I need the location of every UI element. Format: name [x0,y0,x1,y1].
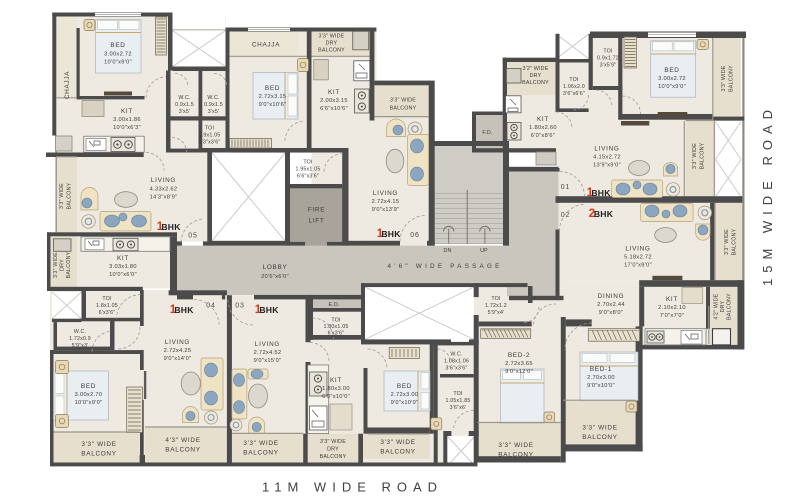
svg-text:3'3" WIDE: 3'3" WIDE [53,252,59,278]
svg-text:6'x3'6": 6'x3'6" [328,330,345,336]
svg-text:UP: UP [480,248,488,254]
svg-text:9'0"x8'0": 9'0"x8'0" [599,310,623,316]
svg-text:DRY: DRY [326,41,338,47]
svg-text:BALCONY: BALCONY [522,80,549,86]
svg-text:10'0"x6'0": 10'0"x6'0" [109,272,137,278]
svg-text:6'6"x3'6": 6'6"x3'6" [297,174,319,180]
svg-text:0.9x1.72: 0.9x1.72 [597,56,619,62]
svg-text:DINING: DINING [598,293,625,300]
svg-text:TOI: TOI [491,296,500,302]
svg-text:BHK: BHK [161,222,181,232]
svg-text:01: 01 [561,184,570,191]
svg-text:4.33x2.62: 4.33x2.62 [150,187,178,193]
svg-text:BHK: BHK [259,305,279,315]
svg-text:LIVING: LIVING [594,146,619,153]
svg-text:W.C.: W.C. [74,329,86,335]
svg-text:11M WIDE ROAD: 11M WIDE ROAD [262,480,443,495]
svg-text:7'0"x7'0": 7'0"x7'0" [660,313,684,319]
svg-text:DN: DN [443,248,451,254]
svg-text:KIT: KIT [666,296,678,303]
svg-text:BED: BED [397,383,412,390]
svg-text:6'3"x3'6": 6'3"x3'6" [198,140,220,146]
svg-text:3'3" WIDE: 3'3" WIDE [320,439,346,445]
svg-text:1.06x2.0: 1.06x2.0 [563,84,585,90]
svg-text:BHK: BHK [174,305,194,315]
svg-text:2.72x3.00: 2.72x3.00 [391,392,419,398]
svg-text:20'6"x6'0": 20'6"x6'0" [261,274,289,280]
svg-text:TOI: TOI [603,49,612,55]
svg-text:1.80x1.05: 1.80x1.05 [323,324,348,330]
svg-text:9'0"x10'0": 9'0"x10'0" [391,400,419,406]
svg-text:3.00x1.86: 3.00x1.86 [113,117,141,123]
svg-text:LIVING: LIVING [373,190,398,197]
svg-text:3.00x2.70: 3.00x2.70 [75,392,103,398]
svg-text:0.9x1.5: 0.9x1.5 [204,102,223,108]
svg-text:1.72x1.2: 1.72x1.2 [485,303,507,309]
svg-text:3'3" WIDE: 3'3" WIDE [81,441,116,448]
svg-text:3'3" WIDE: 3'3" WIDE [380,439,415,446]
svg-text:10'0"x6'3": 10'0"x6'3" [113,125,141,131]
svg-text:06: 06 [410,232,419,239]
svg-text:KIT: KIT [117,255,129,262]
svg-text:BHK: BHK [594,209,614,219]
svg-text:BALCONY: BALCONY [380,449,415,456]
svg-text:1.9x1.05: 1.9x1.05 [199,133,221,139]
svg-text:3'3" WIDE: 3'3" WIDE [721,65,727,91]
svg-text:W.C.: W.C. [178,95,190,101]
svg-text:BALCONY: BALCONY [732,228,738,255]
svg-text:4'6" WIDE PASSAGE: 4'6" WIDE PASSAGE [387,263,502,270]
svg-text:3'2" WIDE: 3'2" WIDE [523,66,549,72]
svg-text:TOI: TOI [205,126,214,132]
svg-text:4'3" WIDE: 4'3" WIDE [165,437,200,444]
svg-text:1.72x0.9: 1.72x0.9 [69,336,91,342]
svg-text:BHK: BHK [591,188,611,198]
svg-text:BALCONY: BALCONY [320,454,347,460]
svg-text:KIT: KIT [121,108,133,115]
svg-text:05: 05 [188,233,197,240]
svg-text:2.72x4.52: 2.72x4.52 [254,350,282,356]
svg-text:3'3" WIDE: 3'3" WIDE [692,143,698,169]
svg-text:3'6"x3'6": 3'6"x3'6" [445,366,467,372]
svg-text:3'3" WIDE: 3'3" WIDE [59,183,65,209]
svg-text:4.15x2.72: 4.15x2.72 [593,155,621,161]
svg-text:BED-1: BED-1 [590,366,612,373]
svg-text:BALCONY: BALCONY [498,452,533,459]
svg-text:3'x5'9": 3'x5'9" [600,63,617,69]
svg-text:2.10x2.10: 2.10x2.10 [658,305,686,311]
svg-text:2.70x2.44: 2.70x2.44 [597,302,625,308]
svg-text:BALCONY: BALCONY [165,447,200,454]
svg-text:BALCONY: BALCONY [582,434,617,441]
svg-text:3.00x2.72: 3.00x2.72 [658,76,686,82]
svg-text:14'3"x8'9": 14'3"x8'9" [150,195,178,201]
svg-text:10'0"x9'0": 10'0"x9'0" [104,60,132,66]
svg-text:BED: BED [265,85,280,92]
svg-text:6'0"x10'0": 6'0"x10'0" [322,394,350,400]
svg-text:BALCONY: BALCONY [390,106,417,112]
svg-text:F.D.: F.D. [482,130,492,136]
svg-text:BALCONY: BALCONY [243,450,278,457]
svg-text:TOI: TOI [569,77,578,83]
svg-text:1.08x1.06: 1.08x1.06 [444,359,469,365]
svg-text:KIT: KIT [328,89,340,96]
svg-text:1.05x1.85: 1.05x1.85 [445,398,470,404]
svg-text:CHAJJA: CHAJJA [64,71,71,99]
svg-text:BALCONY: BALCONY [727,293,733,320]
svg-text:1.95x1.05: 1.95x1.05 [295,167,320,173]
svg-text:3.00x2.72: 3.00x2.72 [104,52,132,58]
svg-text:LIVING: LIVING [625,246,650,253]
svg-text:2.72x4.25: 2.72x4.25 [164,348,192,354]
svg-text:DRY: DRY [530,73,542,79]
svg-text:BED: BED [81,383,96,390]
svg-text:9'0"x14'0": 9'0"x14'0" [164,356,192,362]
svg-text:DRY: DRY [327,447,339,453]
svg-text:BALCONY: BALCONY [700,142,706,169]
svg-text:5'9"x4': 5'9"x4' [488,310,505,316]
svg-text:BED: BED [110,42,125,49]
svg-text:BED: BED [664,67,679,74]
svg-text:02: 02 [561,212,570,219]
svg-text:1.80x2.60: 1.80x2.60 [529,125,557,131]
svg-text:LIVING: LIVING [151,177,176,184]
svg-text:3'3" WIDE: 3'3" WIDE [582,425,617,432]
svg-text:LIVING: LIVING [255,341,280,348]
svg-text:9'0"x13'9": 9'0"x13'9" [372,207,400,213]
svg-text:0.9x1.5: 0.9x1.5 [175,102,194,108]
svg-text:9'0"x12'0": 9'0"x12'0" [505,369,533,375]
svg-text:1.8x1.05: 1.8x1.05 [96,303,118,309]
svg-text:KIT: KIT [330,377,342,384]
svg-text:BALCONY: BALCONY [66,251,72,278]
svg-text:5.18x2.72: 5.18x2.72 [624,255,652,261]
svg-text:3'x5': 3'x5' [179,109,191,115]
svg-text:BALCONY: BALCONY [318,48,345,54]
svg-text:BALCONY: BALCONY [729,65,735,92]
svg-text:3'6"x6': 3'6"x6' [450,405,467,411]
svg-text:2.70x3.00: 2.70x3.00 [587,375,615,381]
svg-text:4'2" WIDE: 4'2" WIDE [714,293,720,319]
svg-text:W.C.: W.C. [450,352,462,358]
svg-text:BALCONY: BALCONY [81,451,116,458]
svg-text:DRY: DRY [60,259,66,271]
svg-text:13'9"x9'0": 13'9"x9'0" [593,163,621,169]
svg-text:10'0"x9'0": 10'0"x9'0" [75,400,103,406]
svg-text:FIRE: FIRE [308,207,325,214]
svg-text:3'3" WIDE: 3'3" WIDE [319,34,345,40]
svg-text:2.72x3.15: 2.72x3.15 [259,94,287,100]
svg-text:TOI: TOI [331,317,340,323]
svg-text:6'0"x8'6": 6'0"x8'6" [531,133,555,139]
svg-text:2.00x3.15: 2.00x3.15 [320,98,348,104]
svg-text:KIT: KIT [537,116,549,123]
svg-text:CHAJJA: CHAJJA [252,42,280,49]
svg-text:2.72x4.15: 2.72x4.15 [372,199,400,205]
svg-text:LIFT: LIFT [309,218,325,225]
svg-text:3'3" WIDE: 3'3" WIDE [724,229,730,255]
svg-text:BED-2: BED-2 [508,352,530,359]
svg-text:04: 04 [206,303,215,310]
svg-text:LOBBY: LOBBY [263,264,288,271]
svg-text:9'0"x10'6": 9'0"x10'6" [259,102,287,108]
svg-text:15M WIDE ROAD: 15M WIDE ROAD [760,104,775,286]
svg-text:3'3" WIDE: 3'3" WIDE [498,442,533,449]
svg-text:3.03x1.80: 3.03x1.80 [109,264,137,270]
svg-text:03: 03 [235,303,244,310]
svg-text:BALCONY: BALCONY [67,182,73,209]
svg-text:5'9"x3': 5'9"x3' [72,343,89,349]
svg-text:TOI: TOI [453,391,462,397]
svg-text:10'0"x9'0": 10'0"x9'0" [658,84,686,90]
svg-text:1.80x3.00: 1.80x3.00 [322,386,350,392]
svg-text:3'x5': 3'x5' [208,109,220,115]
svg-text:BHK: BHK [381,229,401,239]
svg-text:6'x3'6": 6'x3'6" [99,310,116,316]
svg-text:17'0"x9'0": 17'0"x9'0" [624,263,652,269]
svg-text:3'3" WIDE: 3'3" WIDE [243,440,278,447]
svg-text:3'6"x6'6": 3'6"x6'6" [563,91,585,97]
svg-text:6'6"x10'6": 6'6"x10'6" [320,106,348,112]
svg-text:2.72x3.65: 2.72x3.65 [505,361,533,367]
svg-text:W.C.: W.C. [207,95,219,101]
svg-text:TOI: TOI [102,296,111,302]
svg-text:9'0"x15'0": 9'0"x15'0" [254,358,282,364]
svg-text:9'0"x10'0": 9'0"x10'0" [587,383,615,389]
svg-text:TOI: TOI [303,160,312,166]
svg-text:3'3" WIDE: 3'3" WIDE [390,98,416,104]
svg-text:DRY: DRY [720,300,726,312]
svg-text:LIVING: LIVING [165,339,190,346]
svg-text:E.D.: E.D. [328,302,339,308]
